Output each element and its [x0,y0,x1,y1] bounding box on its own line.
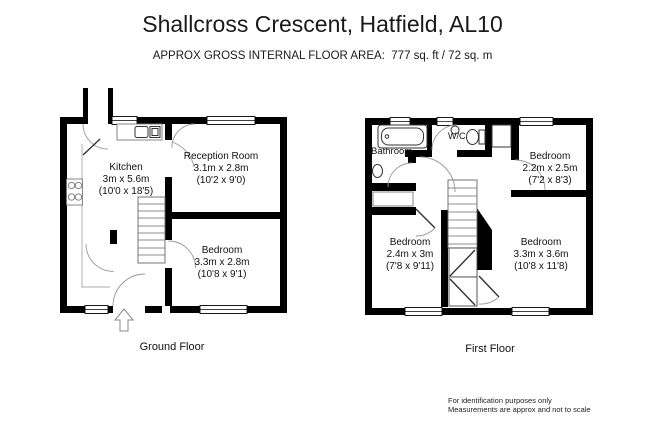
room-name: Bedroom [351,237,469,249]
disclaimer-line2: Measurements are approx and not to scale [448,406,591,415]
bathroom-basin-icon [373,165,383,178]
room-size-imperial: (10'8 x 11'8) [481,261,601,273]
room-size-metric: 3.1m x 2.8m [161,163,281,175]
room-size-imperial: (10'8 x 9'1) [162,269,282,281]
room-size-imperial: (7'2 x 8'3) [490,175,610,187]
ground-stairs-icon [138,197,165,263]
first-bedroom-large-label: Bedroom 3.3m x 3.6m (10'8 x 11'8) [481,237,601,273]
reception-room-label: Reception Room 3.1m x 2.8m (10'2 x 9'0) [161,151,281,187]
wall-recess [373,192,413,206]
first-bedroom-mid-label: Bedroom 2.4m x 3m (7'8 x 9'11) [351,237,469,273]
bathroom-label: Bathroom [371,147,413,157]
floor-area-subtitle: APPROX GROSS INTERNAL FLOOR AREA: 777 sq… [0,50,645,62]
first-bedroom-small-label: Bedroom 2.2m x 2.5m (7'2 x 8'3) [490,151,610,187]
ground-bedroom-label: Bedroom 3.3m x 2.8m (10'8 x 9'1) [162,245,282,281]
room-size-metric: 2.4m x 3m [351,249,469,261]
ground-floor-caption: Ground Floor [72,341,272,353]
room-size-metric: 2.2m x 2.5m [490,163,610,175]
room-name: Bedroom [162,245,282,257]
floorplan-page: Shallcross Crescent, Hatfield, AL10 APPR… [0,0,645,430]
disclaimer: For identification purposes only Measure… [448,397,591,414]
wc-label: W/C [448,131,474,141]
room-name: Bedroom [481,237,601,249]
kitchen-sink-icon [117,124,162,140]
first-floor-plan [355,80,603,325]
room-size-metric: 3.3m x 3.6m [481,249,601,261]
room-size-imperial: (10'2 x 9'0) [161,175,281,187]
first-floor-caption: First Floor [390,343,590,355]
room-size-imperial: (7'8 x 9'11) [351,261,469,273]
page-title: Shallcross Crescent, Hatfield, AL10 [0,10,645,38]
room-name: Bedroom [490,151,610,163]
ground-floor-plan [50,80,295,332]
room-size-imperial: (10'0 x 18'5) [66,186,186,198]
room-name: Reception Room [161,151,281,163]
bathtub-icon [378,125,427,148]
room-size-metric: 3.3m x 2.8m [162,257,282,269]
landing-cupboard [492,125,511,147]
